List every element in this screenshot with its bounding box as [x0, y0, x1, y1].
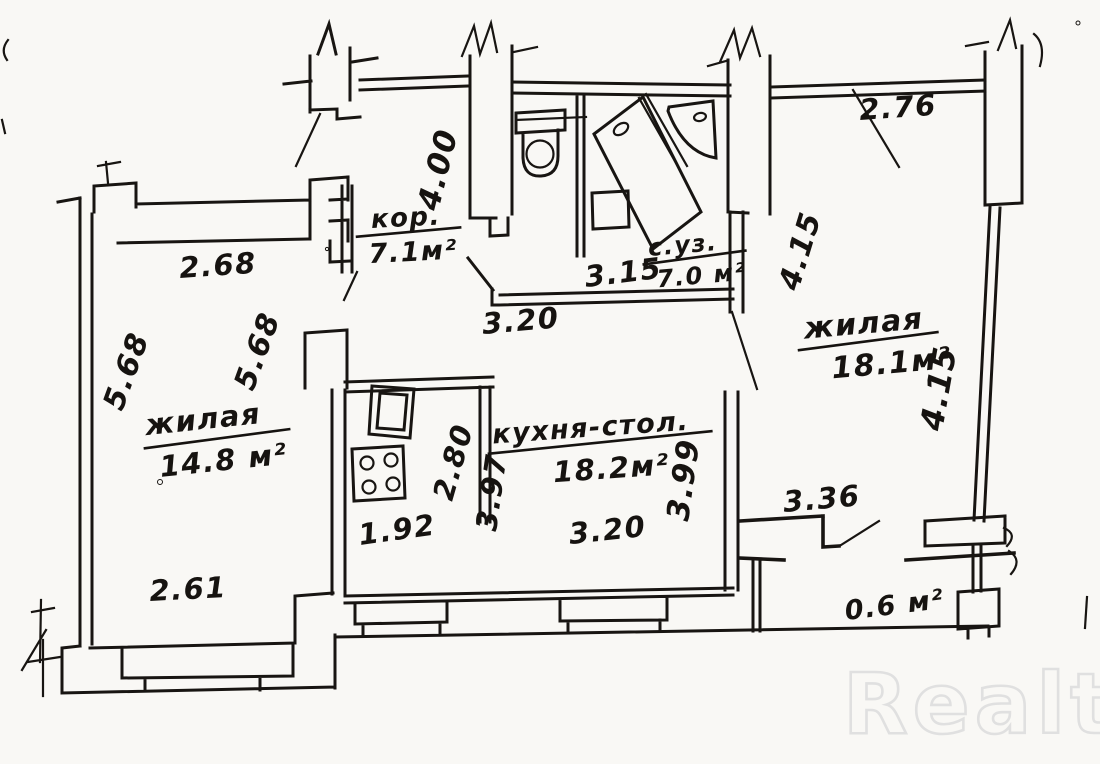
washer-fixture: [592, 191, 629, 229]
entrance-door-walls: [284, 24, 377, 119]
dim-4-00: 4.00: [411, 125, 466, 215]
stove-burner: [387, 478, 400, 491]
dim-5-68-left: 5.68: [97, 328, 157, 415]
edge-mark-left: [2, 120, 5, 133]
dim-2-76: 2.76: [858, 88, 938, 127]
floor-plan-svg: кор. 7.1м² с.уз. 7.0 м² жилая 18.1м² жил…: [0, 0, 1100, 764]
right-exterior-wall: [974, 207, 1000, 521]
edge-mark-left-top: [4, 40, 8, 60]
kitchen-sink-fixture: [369, 386, 414, 438]
scanned-floor-plan: кор. 7.1м² с.уз. 7.0 м² жилая 18.1м² жил…: [0, 0, 1100, 764]
corner-sink-fixture: [668, 101, 716, 158]
dim-2-68: 2.68: [178, 246, 258, 285]
kitchen-area: 18.2м²: [552, 447, 671, 489]
left-balcony-outline: [62, 635, 335, 693]
dim-3-20-hall: 3.20: [481, 300, 561, 341]
edge-mark-right: [1085, 597, 1087, 628]
ink-dot: [1076, 21, 1080, 25]
dim-3-20-kitchen: 3.20: [567, 509, 648, 551]
stove-burner: [363, 481, 376, 494]
shaft-column-right: [985, 46, 1022, 205]
living-right-name: жилая: [800, 301, 924, 346]
surveyor-hatch-marks: [22, 600, 60, 696]
shaft-left-break-mark: [462, 23, 537, 56]
right-room-door-swing: [732, 312, 757, 389]
dim-4-15-left: 4.15: [772, 208, 829, 296]
corridor-area: 7.1м²: [368, 235, 459, 271]
bathtub-drain: [612, 120, 631, 137]
dim-2-80: 2.80: [426, 420, 480, 504]
dim-3-97: 3.97: [469, 451, 513, 533]
corner-sink-faucet: [693, 112, 706, 122]
dim-3-15: 3.15: [583, 251, 664, 294]
stove-burner: [361, 457, 374, 470]
balcony-area-label: 0.6 м²: [843, 584, 946, 627]
dim-5-68-right: 5.68: [228, 308, 288, 395]
entrance-door-swing: [296, 114, 320, 166]
dim-2-61: 2.61: [149, 570, 228, 608]
shaft-column-left: [470, 46, 512, 236]
dim-1-92: 1.92: [356, 507, 438, 551]
stove-burner: [385, 454, 398, 467]
shaft-middle-break-mark: [708, 28, 760, 66]
ink-dot: [325, 247, 328, 250]
shaft-right-break-mark: [966, 20, 1042, 66]
room-label-corridor: кор. 7.1м²: [354, 200, 463, 270]
realt-watermark: Realt: [843, 655, 1100, 753]
room-label-living-left: жилая 14.8 м²: [139, 393, 294, 485]
bathtub-fixture: [594, 97, 701, 249]
toilet-bowl-circle: [527, 141, 554, 168]
bottom-right-door-swing: [841, 521, 879, 545]
dim-3-36: 3.36: [782, 478, 862, 519]
stove-fixture: [352, 446, 405, 501]
